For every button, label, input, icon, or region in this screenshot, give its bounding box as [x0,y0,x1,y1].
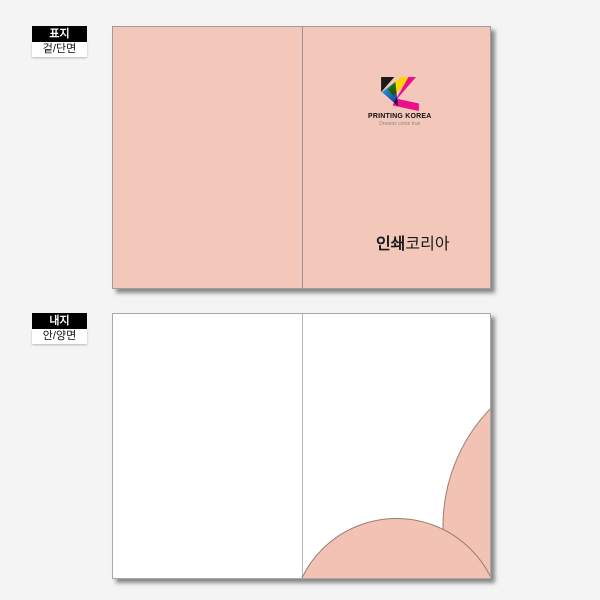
company-name-bold: 인쇄 [376,236,405,253]
logo-brand-text: PRINTING KOREA [340,113,460,120]
cmyk-k-logo-icon [381,77,419,111]
inner-label-title: 내지 [32,313,87,329]
printing-korea-logo: PRINTING KOREA Dreams come true [340,77,460,127]
inner-label-subtitle: 안/양면 [32,329,87,344]
cover-label-title: 표지 [32,26,87,42]
cover-card-preview: PRINTING KOREA Dreams come true 인쇄코리아 [112,26,491,289]
cover-fold-line [302,27,303,288]
cover-label-subtitle: 겉/단면 [32,42,87,57]
inner-label: 내지 안/양면 [32,313,87,344]
company-name-regular: 코리아 [405,236,449,253]
logo-tagline-text: Dreams come true [340,121,460,127]
inner-card-preview [112,313,491,579]
cover-company-name: 인쇄코리아 [376,230,450,254]
cover-label: 표지 겉/단면 [32,26,87,57]
pocket-shapes [113,314,490,578]
